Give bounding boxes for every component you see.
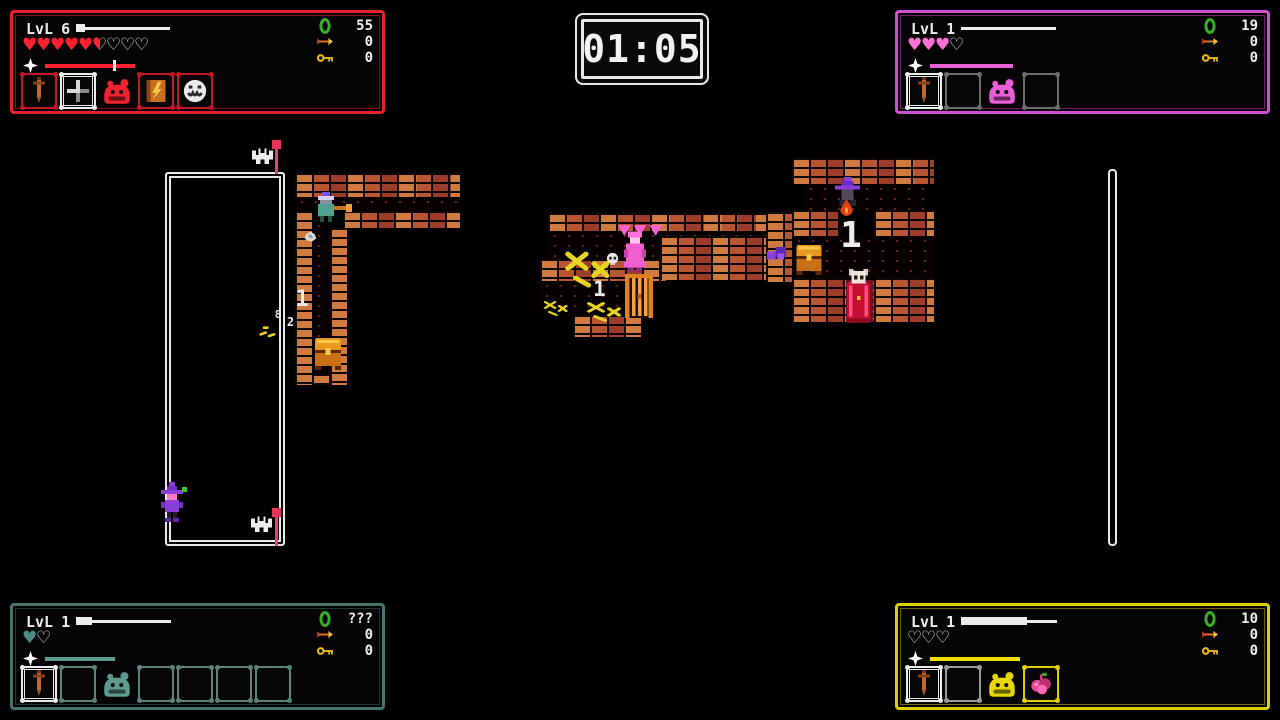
item-slot-berries	[1023, 666, 1059, 702]
heart-full: ♥	[935, 35, 949, 55]
slot-corner-dots	[1022, 665, 1027, 670]
item-slots	[906, 666, 1059, 702]
item-slot-empty	[1023, 73, 1059, 109]
counter-key: 0	[316, 50, 373, 65]
arrow-icon	[316, 37, 334, 46]
health-hearts: ♥♥♥♡	[907, 35, 963, 55]
damage-number: 8	[272, 307, 284, 322]
counter-value: 19	[1224, 18, 1258, 34]
health-hearts: ♡♡♡	[907, 628, 949, 648]
heart-full: ♥	[78, 35, 92, 55]
slot-corner-dots	[1022, 72, 1027, 77]
gate	[624, 274, 654, 318]
key-icon	[316, 646, 334, 656]
item-slot-empty	[216, 666, 252, 702]
item-slot-empty	[945, 666, 981, 702]
heart-empty: ♡	[935, 628, 949, 648]
hud-panel-player-pink: LvL1 ♥♥♥♡ 1900	[895, 10, 1270, 114]
room-floor	[804, 184, 924, 210]
counter-arrow: 0	[316, 627, 373, 642]
cultist	[843, 269, 874, 323]
slot-corner-dots	[59, 72, 64, 77]
damage-number: 2	[284, 314, 297, 331]
gem-icon	[1201, 18, 1219, 34]
counter-gem: 19	[1201, 18, 1258, 33]
arrow-icon	[316, 630, 334, 639]
bones	[583, 297, 623, 323]
counter-value: 55	[339, 18, 373, 34]
slot-corner-dots	[176, 665, 181, 670]
flag-banner	[272, 140, 281, 149]
item-slot-crosshair	[60, 73, 96, 109]
pink-hero	[620, 231, 650, 274]
level-value: 1	[61, 613, 70, 631]
counter-key: 0	[1201, 50, 1258, 65]
resource-counters: ???00	[316, 611, 373, 658]
gem-icon	[1201, 611, 1219, 627]
match-timer: 01:05	[575, 13, 709, 85]
item-slot-empty	[60, 666, 96, 702]
floor-number: 1	[840, 213, 862, 258]
heart-full: ♥	[22, 628, 36, 648]
rock	[303, 228, 318, 241]
heart-empty: ♡	[120, 35, 134, 55]
counter-arrow: 0	[1201, 34, 1258, 49]
flag	[272, 140, 282, 174]
counter-value: 0	[339, 643, 373, 659]
counter-gem: ???	[316, 611, 373, 626]
counter-value: ???	[339, 611, 373, 627]
counter-value: 0	[339, 50, 373, 66]
brick-wall	[874, 210, 934, 236]
gem-icon	[316, 611, 334, 627]
slot-corner-dots	[944, 72, 949, 77]
brick-wall	[343, 211, 460, 228]
item-slot-slime	[99, 666, 135, 702]
match-timer-value: 01:05	[582, 27, 701, 71]
counter-gem: 10	[1201, 611, 1258, 626]
counter-value: 0	[339, 34, 373, 50]
ghost	[251, 514, 272, 532]
item-slot-sword	[906, 666, 942, 702]
floor-number: 1	[292, 286, 312, 314]
health-hearts: ♥♡	[22, 628, 50, 648]
heart-empty: ♡	[921, 628, 935, 648]
item-slots	[906, 73, 1059, 109]
heart-half: ♡♥	[92, 35, 106, 55]
slot-corner-dots	[20, 72, 25, 77]
counter-gem: 55	[316, 18, 373, 33]
slot-corner-dots	[20, 665, 25, 670]
ghost	[252, 146, 273, 164]
health-hearts: ♥♥♥♥♥♡♥♡♡♡	[22, 35, 148, 55]
slot-corner-dots	[59, 665, 64, 670]
purple-pickup	[765, 244, 788, 265]
heart-empty: ♡	[106, 35, 120, 55]
counter-key: 0	[1201, 643, 1258, 658]
slot-corner-dots	[137, 665, 142, 670]
slot-corner-dots	[905, 72, 910, 77]
item-slot-empty	[177, 666, 213, 702]
resource-counters: 1000	[1201, 611, 1258, 658]
item-slot-sword	[21, 73, 57, 109]
item-slot-empty	[138, 666, 174, 702]
wizard-npc	[314, 192, 352, 224]
slot-corner-dots	[905, 665, 910, 670]
counter-key: 0	[316, 643, 373, 658]
counter-value: 0	[1224, 34, 1258, 50]
item-slot-slime	[99, 73, 135, 109]
flag	[272, 508, 282, 546]
item-slots	[21, 73, 213, 109]
brick-wall	[792, 278, 848, 322]
heart-full: ♥	[64, 35, 78, 55]
slot-corner-dots	[176, 72, 181, 77]
item-slot-empty	[255, 666, 291, 702]
brick-wall	[874, 278, 934, 322]
heart-full: ♥	[50, 35, 64, 55]
item-slot-slime	[984, 666, 1020, 702]
hud-panel-player-teal: LvL1 ♥♡ ???00	[10, 603, 385, 710]
chest	[793, 241, 825, 275]
hud-panel-player-yellow: LvL1 ♡♡♡ 1000	[895, 603, 1270, 710]
slot-corner-dots	[137, 72, 142, 77]
chest	[313, 334, 343, 370]
item-slot-slime	[984, 73, 1020, 109]
slot-corner-dots	[215, 665, 220, 670]
item-slot-spellbook	[138, 73, 174, 109]
arrow-icon	[1201, 630, 1219, 639]
right-room-wall	[1108, 169, 1117, 546]
item-slot-sword	[21, 666, 57, 702]
heart-full: ♥	[22, 35, 36, 55]
heart-empty: ♡	[907, 628, 921, 648]
heart-full: ♥	[36, 35, 50, 55]
hud-panel-player-red: LvL6 ♥♥♥♥♥♡♥♡♡♡ 5500	[10, 10, 385, 114]
counter-arrow: 0	[1201, 627, 1258, 642]
heart-full: ♥	[921, 35, 935, 55]
counter-arrow: 0	[316, 34, 373, 49]
bones	[541, 297, 569, 317]
slot-corner-dots	[254, 665, 259, 670]
counter-value: 0	[1224, 50, 1258, 66]
arrow-icon	[1201, 37, 1219, 46]
gem-icon	[316, 18, 334, 34]
key-icon	[1201, 646, 1219, 656]
key-icon	[1201, 53, 1219, 63]
counter-value: 0	[1224, 627, 1258, 643]
item-slot-mask	[177, 73, 213, 109]
game-screen[interactable]: 18211 01:05 LvL6 ♥♥♥♥♥♡♥♡♡♡ 5500 LvL1 ♥♥…	[0, 0, 1280, 720]
brick-wall	[312, 374, 330, 385]
counter-value: 10	[1224, 611, 1258, 627]
heart-empty: ♡	[949, 35, 963, 55]
item-slot-empty	[945, 73, 981, 109]
flag-banner	[272, 508, 281, 517]
brick-wall	[792, 210, 838, 236]
item-slot-sword	[906, 73, 942, 109]
counter-value: 0	[1224, 643, 1258, 659]
resource-counters: 1900	[1201, 18, 1258, 65]
heart-empty: ♡	[134, 35, 148, 55]
slot-corner-dots	[944, 665, 949, 670]
green-pickup	[182, 487, 187, 492]
key-icon	[316, 53, 334, 63]
heart-empty: ♡	[36, 628, 50, 648]
counter-value: 0	[339, 627, 373, 643]
resource-counters: 5500	[316, 18, 373, 65]
item-slots	[21, 666, 291, 702]
debris	[259, 323, 279, 337]
heart-full: ♥	[907, 35, 921, 55]
